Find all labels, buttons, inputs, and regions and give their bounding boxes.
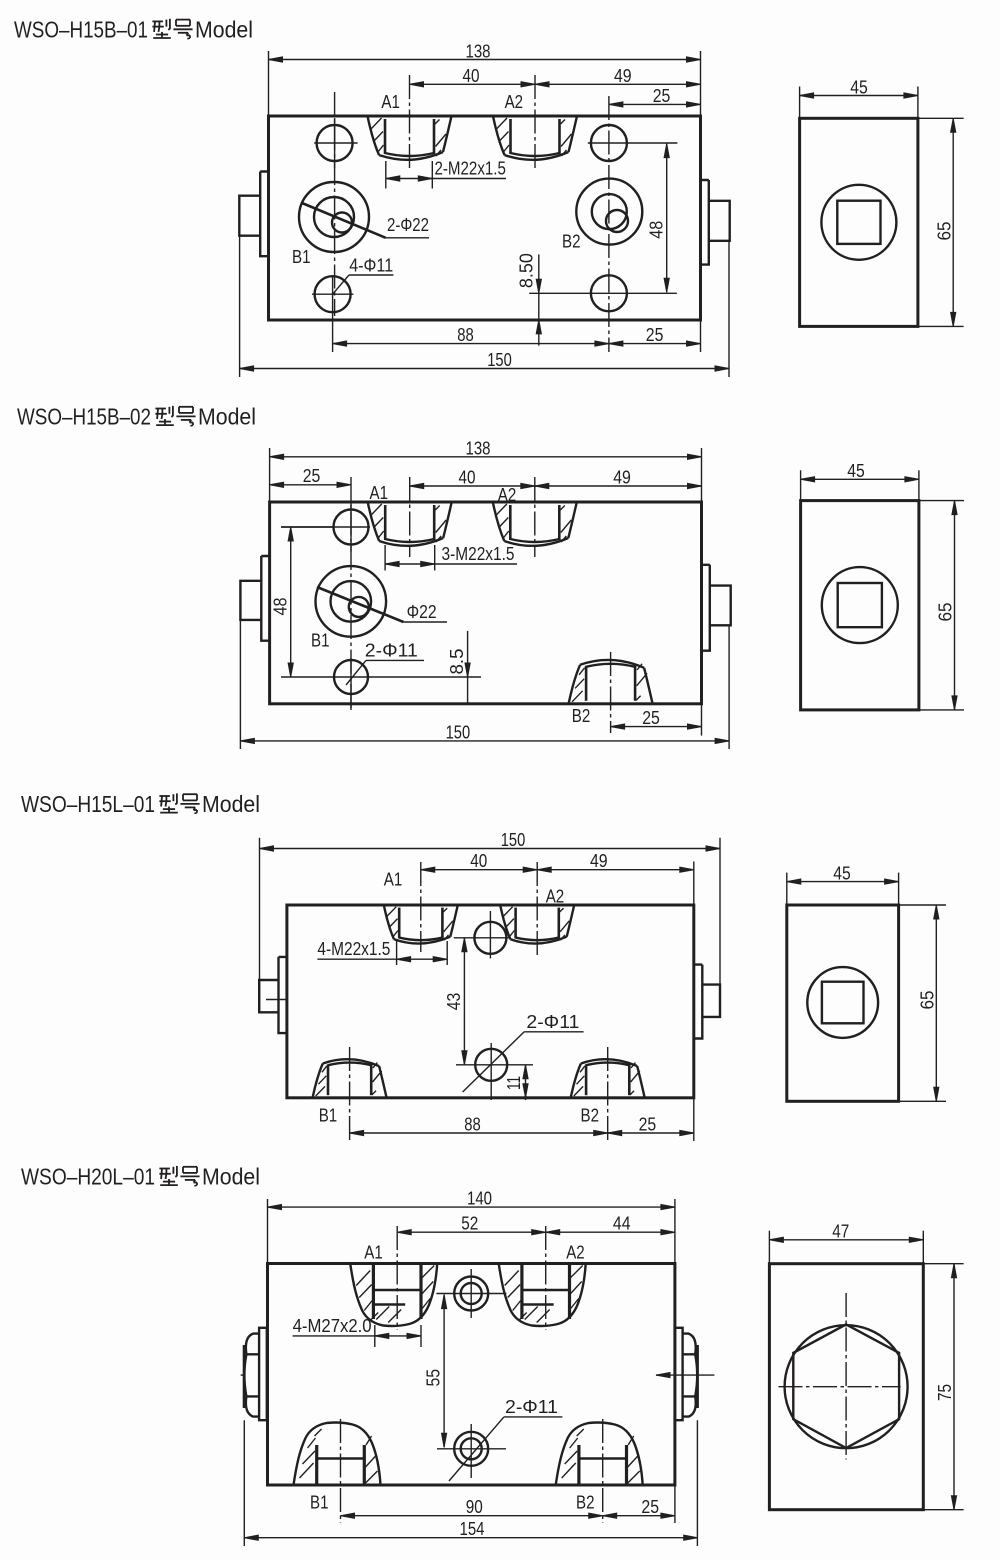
svg-text:140: 140 [467,1188,492,1209]
svg-text:Model: Model [202,791,260,817]
svg-text:Model: Model [195,16,253,42]
svg-text:B2: B2 [581,1105,600,1126]
svg-text:138: 138 [466,438,491,459]
svg-text:B1: B1 [311,630,330,651]
svg-text:B2: B2 [572,705,591,726]
svg-text:2-Φ11: 2-Φ11 [505,1396,558,1417]
svg-text:25: 25 [653,85,671,106]
svg-text:138: 138 [466,40,491,61]
svg-text:B2: B2 [562,231,581,252]
svg-text:75: 75 [934,1384,955,1401]
svg-text:40: 40 [470,850,487,871]
svg-text:2-Φ11: 2-Φ11 [526,1011,579,1032]
svg-text:2-M22x1.5: 2-M22x1.5 [435,158,506,179]
svg-text:49: 49 [590,850,608,871]
svg-text:WSO–H15L–01: WSO–H15L–01 [21,791,155,817]
svg-text:WSO–H15B–02: WSO–H15B–02 [17,404,151,430]
svg-text:B1: B1 [310,1492,329,1513]
svg-text:65: 65 [916,991,937,1010]
svg-text:B1: B1 [292,246,311,267]
svg-text:45: 45 [850,76,868,97]
svg-text:4-Φ11: 4-Φ11 [349,255,393,276]
svg-text:WSO–H20L–01: WSO–H20L–01 [21,1164,155,1190]
svg-text:40: 40 [463,65,480,86]
svg-text:45: 45 [847,460,865,481]
svg-text:49: 49 [613,466,631,487]
svg-text:B1: B1 [319,1105,338,1126]
svg-text:8.5: 8.5 [446,649,467,675]
svg-text:A1: A1 [364,1242,383,1263]
svg-text:25: 25 [303,465,321,486]
svg-text:25: 25 [642,707,660,728]
svg-text:52: 52 [461,1213,478,1234]
svg-text:25: 25 [641,1496,659,1517]
svg-text:25: 25 [646,324,664,345]
svg-text:A2: A2 [566,1242,585,1263]
svg-text:25: 25 [639,1114,657,1135]
svg-text:A1: A1 [384,869,403,890]
svg-text:47: 47 [832,1220,849,1241]
svg-text:150: 150 [487,349,512,370]
svg-text:154: 154 [460,1518,485,1539]
svg-text:8.50: 8.50 [515,253,536,288]
svg-text:150: 150 [446,721,471,742]
svg-text:Model: Model [198,404,256,430]
svg-text:A2: A2 [498,484,517,505]
svg-text:4-M27x2.0: 4-M27x2.0 [293,1315,372,1336]
svg-text:48: 48 [269,598,290,616]
svg-text:90: 90 [466,1496,483,1517]
svg-text:A2: A2 [546,886,565,907]
svg-text:45: 45 [833,862,851,883]
svg-text:2-Φ11: 2-Φ11 [365,640,418,661]
svg-text:40: 40 [459,466,476,487]
svg-text:2-Φ22: 2-Φ22 [387,214,429,235]
svg-text:88: 88 [464,1114,481,1135]
svg-text:65: 65 [933,222,954,241]
svg-text:150: 150 [501,829,526,850]
svg-text:65: 65 [934,603,955,622]
svg-text:B2: B2 [576,1492,595,1513]
svg-text:A1: A1 [381,91,400,112]
svg-text:11: 11 [503,1076,524,1090]
svg-text:A1: A1 [370,482,389,503]
svg-text:88: 88 [457,324,474,345]
svg-text:A2: A2 [505,91,523,112]
svg-text:Φ22: Φ22 [407,601,437,622]
svg-text:55: 55 [422,1369,443,1387]
svg-text:WSO–H15B–01: WSO–H15B–01 [14,16,148,42]
svg-text:49: 49 [614,65,632,86]
svg-text:4-M22x1.5: 4-M22x1.5 [317,938,390,959]
svg-text:43: 43 [443,993,464,1011]
svg-text:48: 48 [645,221,666,239]
svg-text:3-M22x1.5: 3-M22x1.5 [442,543,515,564]
svg-text:Model: Model [202,1164,260,1190]
svg-text:44: 44 [613,1213,631,1234]
